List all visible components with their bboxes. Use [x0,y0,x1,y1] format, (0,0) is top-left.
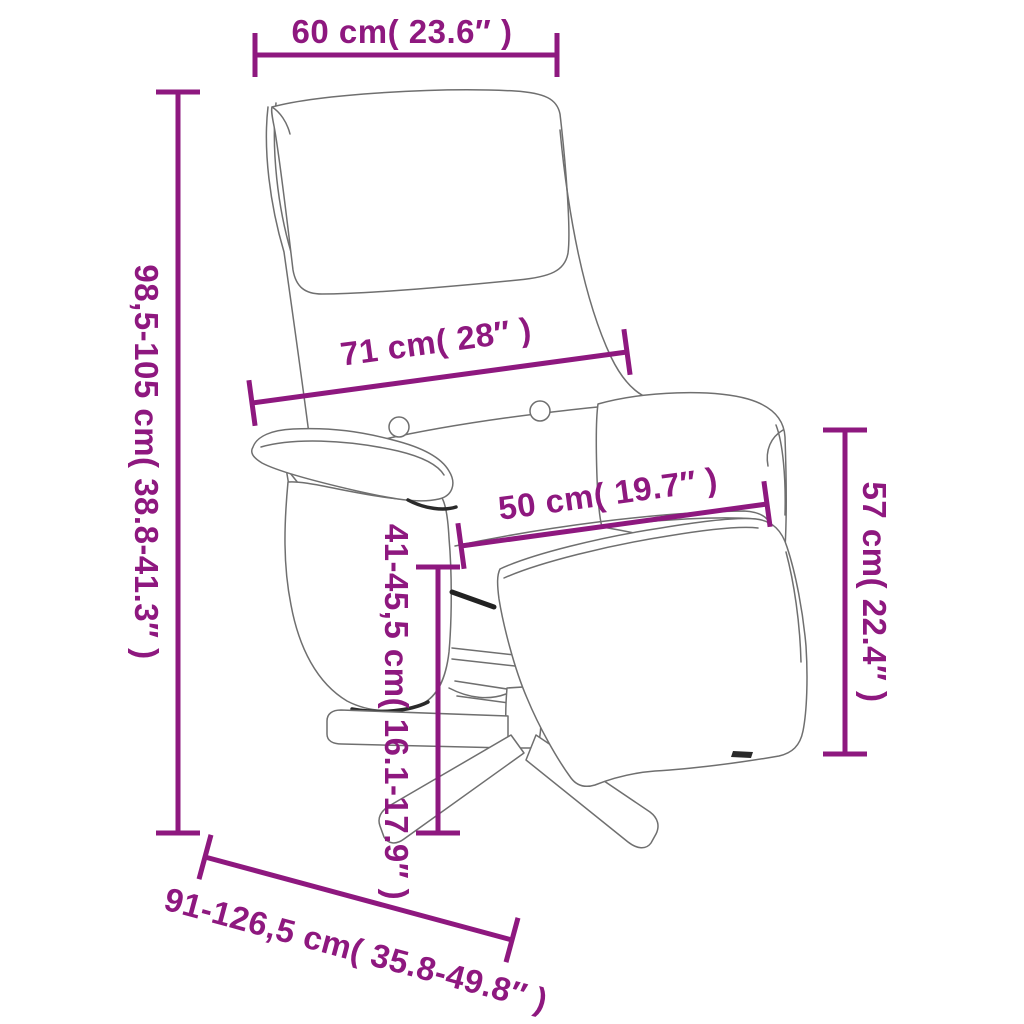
backrest-button [530,401,550,421]
chair-headrest [272,90,569,294]
footrest-glide-foot [731,751,753,758]
dim-seat-height-label: 41-45,5 cm( 16.1-17.9″ ) [377,524,415,900]
chair-left-side-panel [285,482,451,712]
chair-drawing [252,90,807,848]
dim-headrest-width-label: 60 cm( 23.6″ ) [292,13,513,51]
dimension-diagram: 60 cm( 23.6″ ) 98,5-105 cm( 38.8-41.3″ )… [0,0,1024,1024]
dim-arm-height-label: 57 cm( 22.4″ ) [855,482,893,703]
dim-total-height-label: 98,5-105 cm( 38.8-41.3″ ) [127,264,165,659]
backrest-button [389,417,409,437]
